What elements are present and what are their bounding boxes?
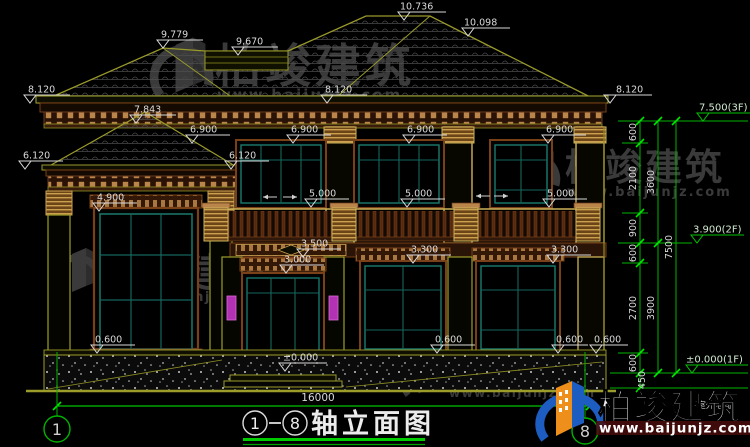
wall-lamp-icon — [329, 296, 338, 320]
title-text: 轴立面图 — [311, 408, 435, 440]
level-text: 10.736 — [400, 2, 433, 13]
level-text: 3.300 — [411, 245, 438, 256]
level-text: 3.900(2F) — [693, 225, 742, 236]
level-text: 10.098 — [464, 18, 497, 29]
dim-text: 600 — [628, 244, 639, 262]
stair-window — [90, 195, 202, 355]
dim-text: 7500 — [664, 235, 675, 259]
dim-text: 3900 — [646, 296, 657, 320]
door-step — [224, 381, 342, 387]
roof-dormer — [205, 51, 288, 70]
level-text: 6.120 — [23, 151, 50, 162]
title-underline — [243, 438, 425, 441]
level-text: 9.779 — [161, 30, 188, 41]
logo-url-text: www.baijunjz.com — [599, 421, 750, 437]
level-text: 3.000 — [284, 255, 311, 266]
level-text: 3.500 — [301, 239, 328, 250]
first-floor-window — [472, 248, 564, 359]
left-wing-cornice — [42, 165, 246, 191]
level-text: 6.900 — [546, 125, 573, 136]
level-text: 5.000 — [405, 189, 432, 200]
door-step — [230, 375, 336, 381]
second-floor-window — [490, 140, 552, 208]
level-text: ±0.000 — [283, 353, 318, 364]
wall-lamp-icon — [227, 296, 236, 320]
dim-text: 2100 — [628, 166, 639, 190]
main-cornice — [36, 96, 608, 128]
dim-text: 600 — [628, 354, 639, 372]
level-text: 6.900 — [407, 125, 434, 136]
level-text: 0.600 — [435, 335, 462, 346]
level-text: 9.670 — [236, 37, 263, 48]
dim-text: 900 — [628, 219, 639, 237]
level-text: 7.500(3F) — [699, 103, 748, 114]
balcony-railing — [202, 203, 602, 241]
dim-text: 450 — [637, 371, 648, 389]
dim-text: 16000 — [301, 392, 334, 404]
level-text: ±0.000(1F) — [686, 355, 743, 366]
balcony-newel — [452, 203, 480, 241]
title-axis-to: 8 — [290, 414, 300, 433]
dim-text: 600 — [628, 123, 639, 141]
dim-text: 3600 — [646, 170, 657, 194]
dim-text: 2700 — [628, 296, 639, 320]
axis-number: 1 — [52, 420, 62, 439]
level-text: 6.120 — [229, 151, 256, 162]
logo-building-icon — [556, 381, 572, 436]
logo-building-icon — [572, 381, 584, 428]
balcony-newel — [202, 203, 230, 241]
stone-base — [44, 350, 606, 391]
title-axis-from: 1 — [250, 414, 260, 433]
level-text: 5.000 — [309, 189, 336, 200]
dentil-band — [48, 176, 240, 187]
level-text: 0.600 — [556, 335, 583, 346]
level-text: 5.000 — [547, 189, 574, 200]
level-text: 6.900 — [190, 125, 217, 136]
level-text: 8.120 — [616, 85, 643, 96]
level-text: 3.300 — [551, 245, 578, 256]
level-text: 0.600 — [95, 335, 122, 346]
balcony-newel — [574, 203, 602, 241]
level-text: 4.900 — [97, 193, 124, 204]
axis-number: 8 — [580, 422, 590, 441]
level-text: 8.120 — [28, 85, 55, 96]
level-text: 6.900 — [291, 125, 318, 136]
cad-elevation-screenshot: 柏竣建筑 www.baijunjz.com 柏竣建筑 www.baijunjz.… — [0, 0, 750, 447]
balcony-newel — [330, 203, 358, 241]
level-text: 7.843 — [134, 105, 161, 116]
level-text: 8.120 — [325, 85, 352, 96]
level-text: 0.600 — [594, 335, 621, 346]
sill-course — [44, 350, 606, 355]
elevation-drawing: 柏竣建筑 www.baijunjz.com 柏竣建筑 www.baijunjz.… — [0, 0, 750, 447]
